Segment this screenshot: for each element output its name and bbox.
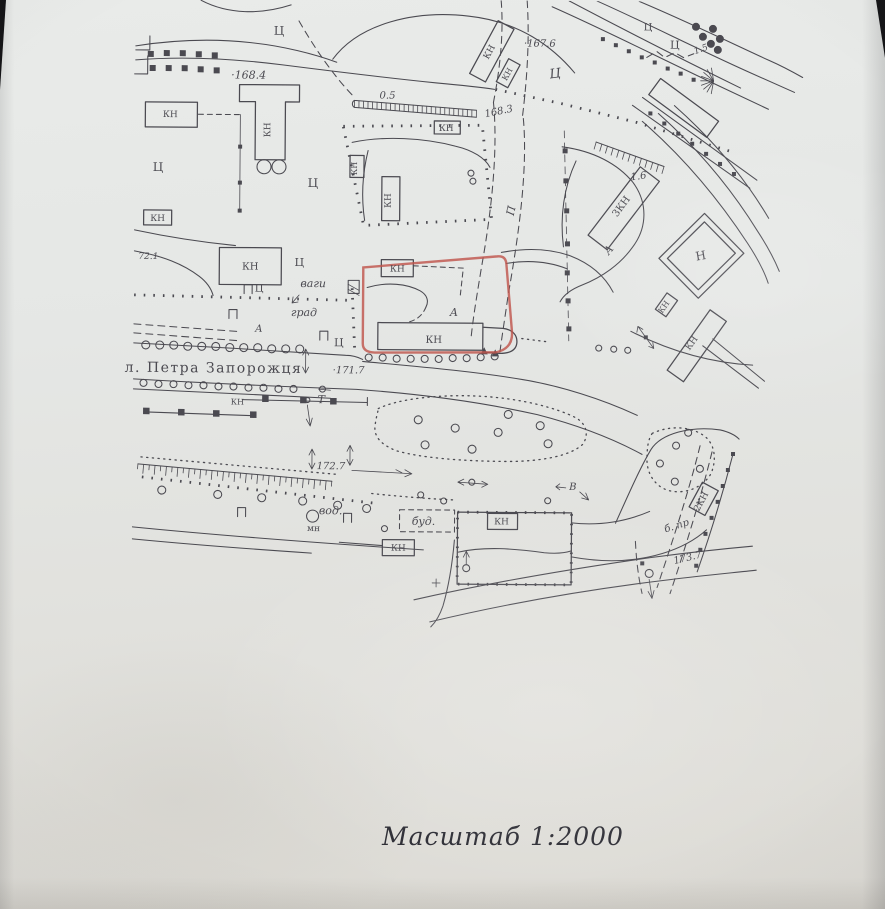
map-symbol xyxy=(244,285,252,294)
map-symbol xyxy=(611,346,617,352)
map-symbol xyxy=(676,132,680,136)
map-symbol xyxy=(296,345,304,353)
map-symbol xyxy=(709,25,717,33)
map-label: Ц xyxy=(153,160,164,174)
map-symbol xyxy=(393,355,400,362)
map-symbol xyxy=(379,354,386,361)
map-symbol xyxy=(656,460,663,467)
map-symbol xyxy=(666,67,670,71)
map-symbol xyxy=(710,516,714,520)
map-symbol xyxy=(611,148,613,155)
map-symbol xyxy=(212,52,218,58)
map-symbol xyxy=(449,355,456,362)
map-label: КН xyxy=(494,517,509,527)
map-symbol xyxy=(166,466,167,475)
map-symbol xyxy=(718,162,722,166)
map-symbol xyxy=(601,37,605,41)
map-symbol xyxy=(198,66,204,72)
map-label: КН xyxy=(426,335,443,346)
map-symbol xyxy=(564,208,569,213)
map-symbol xyxy=(494,428,502,436)
map-symbol xyxy=(614,43,618,47)
map-symbol xyxy=(170,381,177,388)
map-symbol xyxy=(504,410,512,418)
map-symbol xyxy=(143,408,150,415)
map-symbol xyxy=(254,344,262,352)
map-symbol xyxy=(211,471,212,480)
map-label: Ц xyxy=(670,39,680,52)
map-symbol xyxy=(188,468,189,477)
map-symbol xyxy=(716,500,720,504)
map-symbol xyxy=(268,476,269,485)
map-symbol xyxy=(180,50,186,56)
map-symbol xyxy=(223,472,224,481)
map-label: 0.5 xyxy=(380,91,396,102)
map-symbol xyxy=(421,441,429,449)
map-symbol xyxy=(566,298,571,303)
map-symbol xyxy=(673,442,680,449)
map-symbol xyxy=(432,579,440,587)
map-label: КН xyxy=(150,214,165,224)
map-symbol xyxy=(414,416,422,424)
map-symbol xyxy=(320,331,328,340)
map-symbol xyxy=(177,467,178,476)
cadastral-map: ЦЦЦЦ·167.6·168.40.5КН168.3КНКН1.51.63КНА… xyxy=(0,0,885,909)
map-label: КН xyxy=(684,335,701,353)
map-symbol xyxy=(470,178,476,184)
map-linework xyxy=(131,0,803,629)
map-symbol xyxy=(307,510,319,522)
map-symbol xyxy=(656,164,658,171)
photo-backdrop: ЦЦЦЦ·167.6·168.40.5КН168.3КНКН1.51.63КНА… xyxy=(0,0,885,909)
map-label: л. Петра Запорожця xyxy=(125,360,303,377)
map-symbol xyxy=(653,60,657,64)
map-symbol xyxy=(699,33,707,41)
map-symbol xyxy=(148,51,154,57)
map-symbol xyxy=(309,449,315,469)
map-label: 172.7 xyxy=(317,461,346,472)
map-label: 72.1 xyxy=(138,252,158,262)
map-symbol xyxy=(645,569,653,577)
map-symbol xyxy=(563,148,568,153)
map-symbol xyxy=(299,497,307,505)
map-label: КН xyxy=(350,162,359,175)
map-symbol xyxy=(679,72,683,76)
map-label: 173.7 xyxy=(672,549,703,567)
map-symbol xyxy=(463,355,470,362)
map-label: КН xyxy=(390,265,405,275)
map-symbol xyxy=(703,532,707,536)
map-symbol xyxy=(200,469,201,478)
map-symbol xyxy=(696,465,703,472)
map-label: 3КН xyxy=(611,194,634,219)
map-symbol xyxy=(640,561,644,565)
map-label: б. пр xyxy=(663,517,691,535)
map-symbol xyxy=(238,209,242,213)
map-symbol xyxy=(314,480,315,489)
map-symbol xyxy=(158,486,166,494)
map-symbol xyxy=(565,270,570,275)
map-symbol xyxy=(347,445,353,465)
map-symbol xyxy=(262,395,269,402)
map-symbol xyxy=(716,35,724,43)
map-symbol xyxy=(600,144,602,151)
map-symbol xyxy=(692,78,696,82)
map-symbol xyxy=(649,79,719,138)
map-label: Н xyxy=(694,248,707,264)
map-symbol xyxy=(229,310,237,319)
map-symbol xyxy=(154,465,155,474)
map-symbol xyxy=(556,484,566,490)
map-symbol xyxy=(215,383,222,390)
map-symbol xyxy=(726,468,730,472)
map-label: буд. xyxy=(412,515,436,528)
map-symbol xyxy=(330,398,337,405)
map-symbol xyxy=(407,355,414,362)
map-symbol xyxy=(257,475,258,484)
map-symbol xyxy=(245,474,246,483)
map-symbol xyxy=(365,354,372,361)
map-label: В xyxy=(568,482,576,493)
map-symbol xyxy=(714,46,722,54)
map-symbol xyxy=(732,172,736,176)
map-label: Ц xyxy=(255,284,264,295)
map-symbol xyxy=(617,150,619,157)
map-label: ·168.4 xyxy=(231,69,266,82)
map-label: А xyxy=(254,324,263,335)
map-symbol xyxy=(667,310,726,382)
map-symbol xyxy=(468,445,476,453)
map-symbol xyxy=(651,162,653,169)
scale-caption: Масштаб 1:2000 xyxy=(382,822,624,851)
map-symbol xyxy=(214,490,222,498)
map-label: КН xyxy=(163,110,178,120)
map-label: 168.3 xyxy=(484,104,514,121)
map-symbol xyxy=(318,389,330,390)
map-symbol xyxy=(212,342,220,350)
map-symbol xyxy=(250,411,257,418)
map-symbol xyxy=(477,354,484,361)
map-label: ·167.6 xyxy=(524,39,557,50)
map-symbol xyxy=(457,512,571,585)
map-symbol xyxy=(458,479,488,487)
map-symbol xyxy=(182,65,188,71)
map-symbol xyxy=(196,51,202,57)
map-symbol xyxy=(214,67,220,73)
map-symbol xyxy=(185,382,192,389)
map-symbol xyxy=(566,326,571,331)
map-symbol xyxy=(634,156,636,163)
map-label: Ц xyxy=(549,66,563,82)
map-symbol xyxy=(155,380,162,387)
map-symbol xyxy=(238,145,242,149)
map-symbol xyxy=(707,40,715,48)
map-symbol xyxy=(731,452,735,456)
map-symbol xyxy=(142,341,150,349)
map-label: Ц xyxy=(274,24,285,38)
map-label: град xyxy=(291,306,317,319)
map-symbol xyxy=(690,142,694,146)
map-symbol xyxy=(536,422,544,430)
map-symbol xyxy=(234,473,235,482)
map-symbol xyxy=(291,478,292,487)
map-symbol xyxy=(268,345,276,353)
map-symbol xyxy=(594,142,596,149)
map-label: Т xyxy=(318,393,327,406)
map-symbol xyxy=(457,512,571,585)
map-symbol xyxy=(166,65,172,71)
map-symbol xyxy=(344,513,352,522)
map-symbol xyxy=(143,464,144,473)
map-symbol xyxy=(704,152,708,156)
map-symbol xyxy=(140,379,147,386)
map-symbol xyxy=(156,341,164,349)
map-symbol xyxy=(178,409,185,416)
map-symbol xyxy=(418,492,424,498)
map-symbol xyxy=(303,479,304,488)
map-symbol xyxy=(662,167,664,174)
map-symbol xyxy=(622,152,624,159)
map-symbol xyxy=(451,424,459,432)
map-symbol xyxy=(150,65,156,71)
map-symbol xyxy=(627,49,631,53)
map-symbol xyxy=(648,111,652,115)
map-symbol xyxy=(352,469,412,476)
map-symbol xyxy=(625,347,631,353)
map-symbol xyxy=(563,178,568,183)
map-symbol xyxy=(628,154,630,161)
map-symbol xyxy=(213,410,220,417)
map-symbol xyxy=(694,564,698,568)
map-label: КН xyxy=(391,544,406,554)
map-label: мн xyxy=(307,524,320,534)
map-symbol xyxy=(639,158,641,165)
map-symbol xyxy=(640,55,644,59)
map-symbol xyxy=(469,479,475,485)
map-label: ваги xyxy=(300,277,326,290)
map-symbol xyxy=(381,526,387,532)
map-symbol xyxy=(721,484,725,488)
map-label: КН xyxy=(231,398,244,407)
map-symbol xyxy=(238,508,246,517)
map-symbol xyxy=(325,481,326,490)
map-symbol xyxy=(545,498,551,504)
map-symbol xyxy=(363,504,371,512)
map-label: Ц xyxy=(644,22,653,33)
map-symbol xyxy=(280,477,281,486)
map-label: КН xyxy=(439,124,454,134)
map-symbol xyxy=(303,349,309,373)
map-symbol xyxy=(441,498,447,504)
map-symbol xyxy=(238,181,242,185)
map-label: КН xyxy=(242,262,259,273)
map-symbol xyxy=(463,565,470,572)
map-label: вод. xyxy=(319,504,343,517)
map-symbol xyxy=(258,494,266,502)
map-label: А xyxy=(600,243,616,259)
map-symbol xyxy=(662,122,666,126)
map-label: Ц xyxy=(294,256,304,269)
map-symbol xyxy=(565,241,570,246)
map-symbol xyxy=(421,355,428,362)
map-label: П xyxy=(504,204,519,218)
map-label: А xyxy=(449,306,458,319)
map-symbol xyxy=(645,160,647,167)
map-symbol xyxy=(435,355,442,362)
map-label: КН xyxy=(384,193,394,208)
map-symbol xyxy=(596,345,602,351)
map-symbol xyxy=(605,146,607,153)
map-label: КН xyxy=(263,122,273,137)
map-symbol xyxy=(544,440,552,448)
map-symbol xyxy=(164,50,170,56)
map-symbol xyxy=(692,23,700,31)
map-label: ·171.7 xyxy=(333,365,366,376)
map-symbol xyxy=(468,170,474,176)
paper-sheet: ЦЦЦЦ·167.6·168.40.5КН168.3КНКН1.51.63КНА… xyxy=(0,0,885,909)
map-symbol xyxy=(580,492,589,500)
map-label: Ц xyxy=(334,336,344,349)
map-symbol xyxy=(240,344,248,352)
map-symbol xyxy=(671,478,678,485)
map-label: 1.6 xyxy=(630,170,648,183)
map-label: Ц xyxy=(308,176,319,190)
map-symbol xyxy=(463,551,469,564)
map-symbol xyxy=(306,405,312,426)
